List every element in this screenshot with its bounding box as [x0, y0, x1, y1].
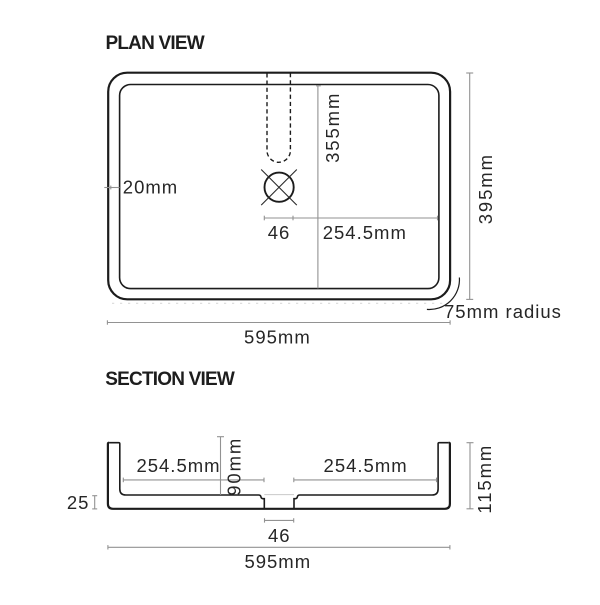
svg-text:254.5mm: 254.5mm: [324, 455, 408, 476]
svg-text:395mm: 395mm: [475, 153, 496, 224]
svg-text:20mm: 20mm: [123, 176, 178, 197]
svg-text:SECTION VIEW: SECTION VIEW: [105, 369, 235, 390]
svg-text:254.5mm: 254.5mm: [136, 455, 220, 476]
svg-text:75mm radius: 75mm radius: [444, 301, 562, 322]
svg-text:25: 25: [67, 492, 90, 513]
svg-text:254.5mm: 254.5mm: [323, 222, 407, 243]
svg-text:355mm: 355mm: [322, 92, 343, 163]
svg-text:46: 46: [268, 222, 291, 243]
svg-text:595mm: 595mm: [244, 551, 311, 572]
svg-text:46: 46: [268, 525, 291, 546]
svg-text:90mm: 90mm: [224, 437, 245, 496]
svg-text:595mm: 595mm: [244, 327, 311, 348]
svg-text:PLAN VIEW: PLAN VIEW: [106, 33, 205, 54]
svg-text:115mm: 115mm: [474, 444, 495, 514]
